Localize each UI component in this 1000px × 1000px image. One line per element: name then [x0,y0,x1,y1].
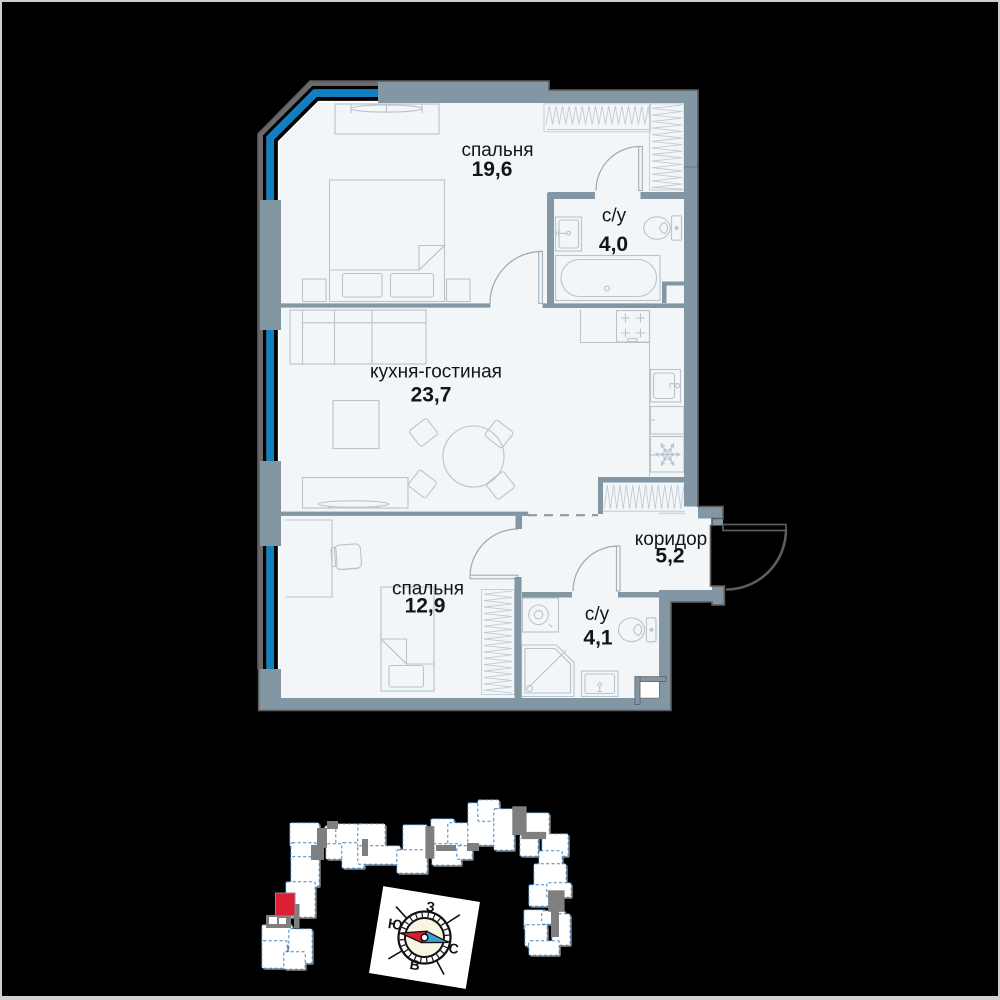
svg-text:кухня-гостиная: кухня-гостиная [370,362,502,383]
svg-text:4,0: 4,0 [599,233,628,256]
svg-text:4,1: 4,1 [583,627,613,650]
svg-text:с/у: с/у [602,206,627,227]
svg-text:5,2: 5,2 [655,545,684,568]
svg-text:23,7: 23,7 [411,384,452,407]
svg-text:12,9: 12,9 [405,595,446,618]
svg-text:19,6: 19,6 [472,158,513,181]
svg-text:с/у: с/у [585,604,610,625]
svg-text:Ю: Ю [387,915,404,933]
